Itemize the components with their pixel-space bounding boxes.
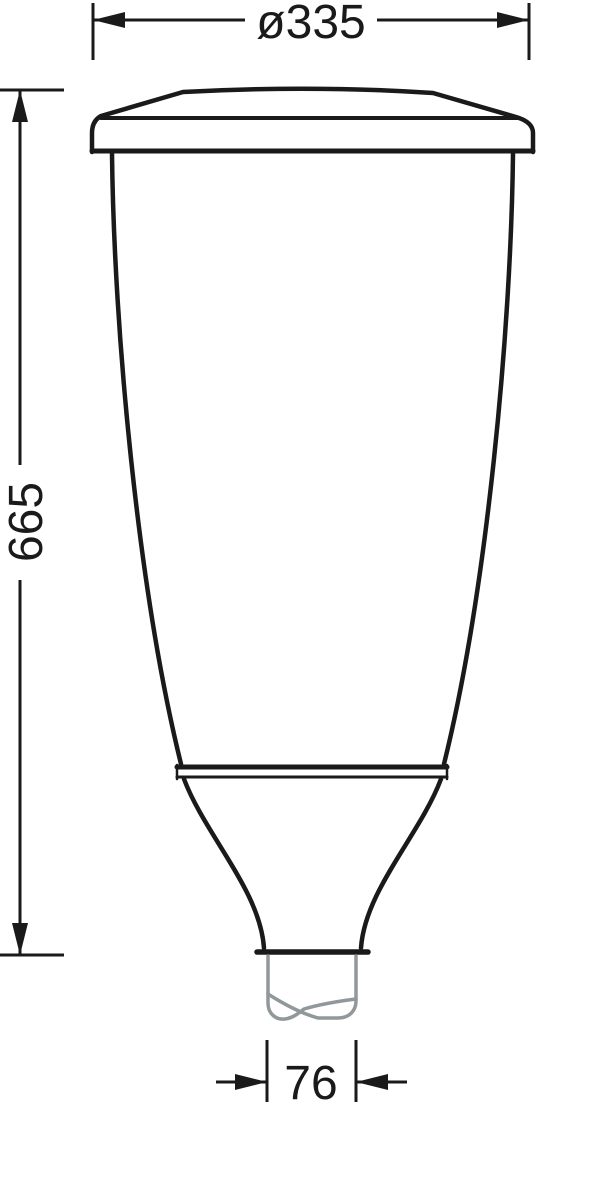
- spigot-left-wall-and-tear: [268, 956, 356, 1019]
- height-value: 665: [0, 482, 53, 562]
- technical-drawing: ø335 665: [0, 0, 606, 1200]
- body-left-wall: [112, 154, 181, 764]
- pole-spigot: [268, 956, 356, 1019]
- body-right-wall: [444, 154, 513, 764]
- drawing-canvas: ø335 665: [0, 0, 606, 1200]
- spigot-width-value: 76: [284, 1057, 337, 1110]
- arrowhead-down-icon: [12, 923, 28, 955]
- dimension-spigot-width: 76: [216, 1040, 407, 1110]
- base-right-wall: [361, 779, 441, 948]
- arrowhead-left-icon: [93, 12, 125, 28]
- luminaire-outline: [92, 89, 533, 952]
- arrowhead-inward-left-icon: [235, 1074, 267, 1090]
- diameter-value: ø335: [256, 0, 365, 49]
- arrowhead-up-icon: [12, 90, 28, 122]
- dimension-diameter: ø335: [93, 0, 529, 60]
- canopy-outline: [92, 89, 533, 152]
- arrowhead-right-icon: [497, 12, 529, 28]
- base-left-wall: [184, 779, 264, 948]
- arrowhead-inward-right-icon: [356, 1074, 388, 1090]
- spigot-right-wall-and-cut: [268, 956, 356, 1018]
- dimension-height: 665: [0, 90, 64, 955]
